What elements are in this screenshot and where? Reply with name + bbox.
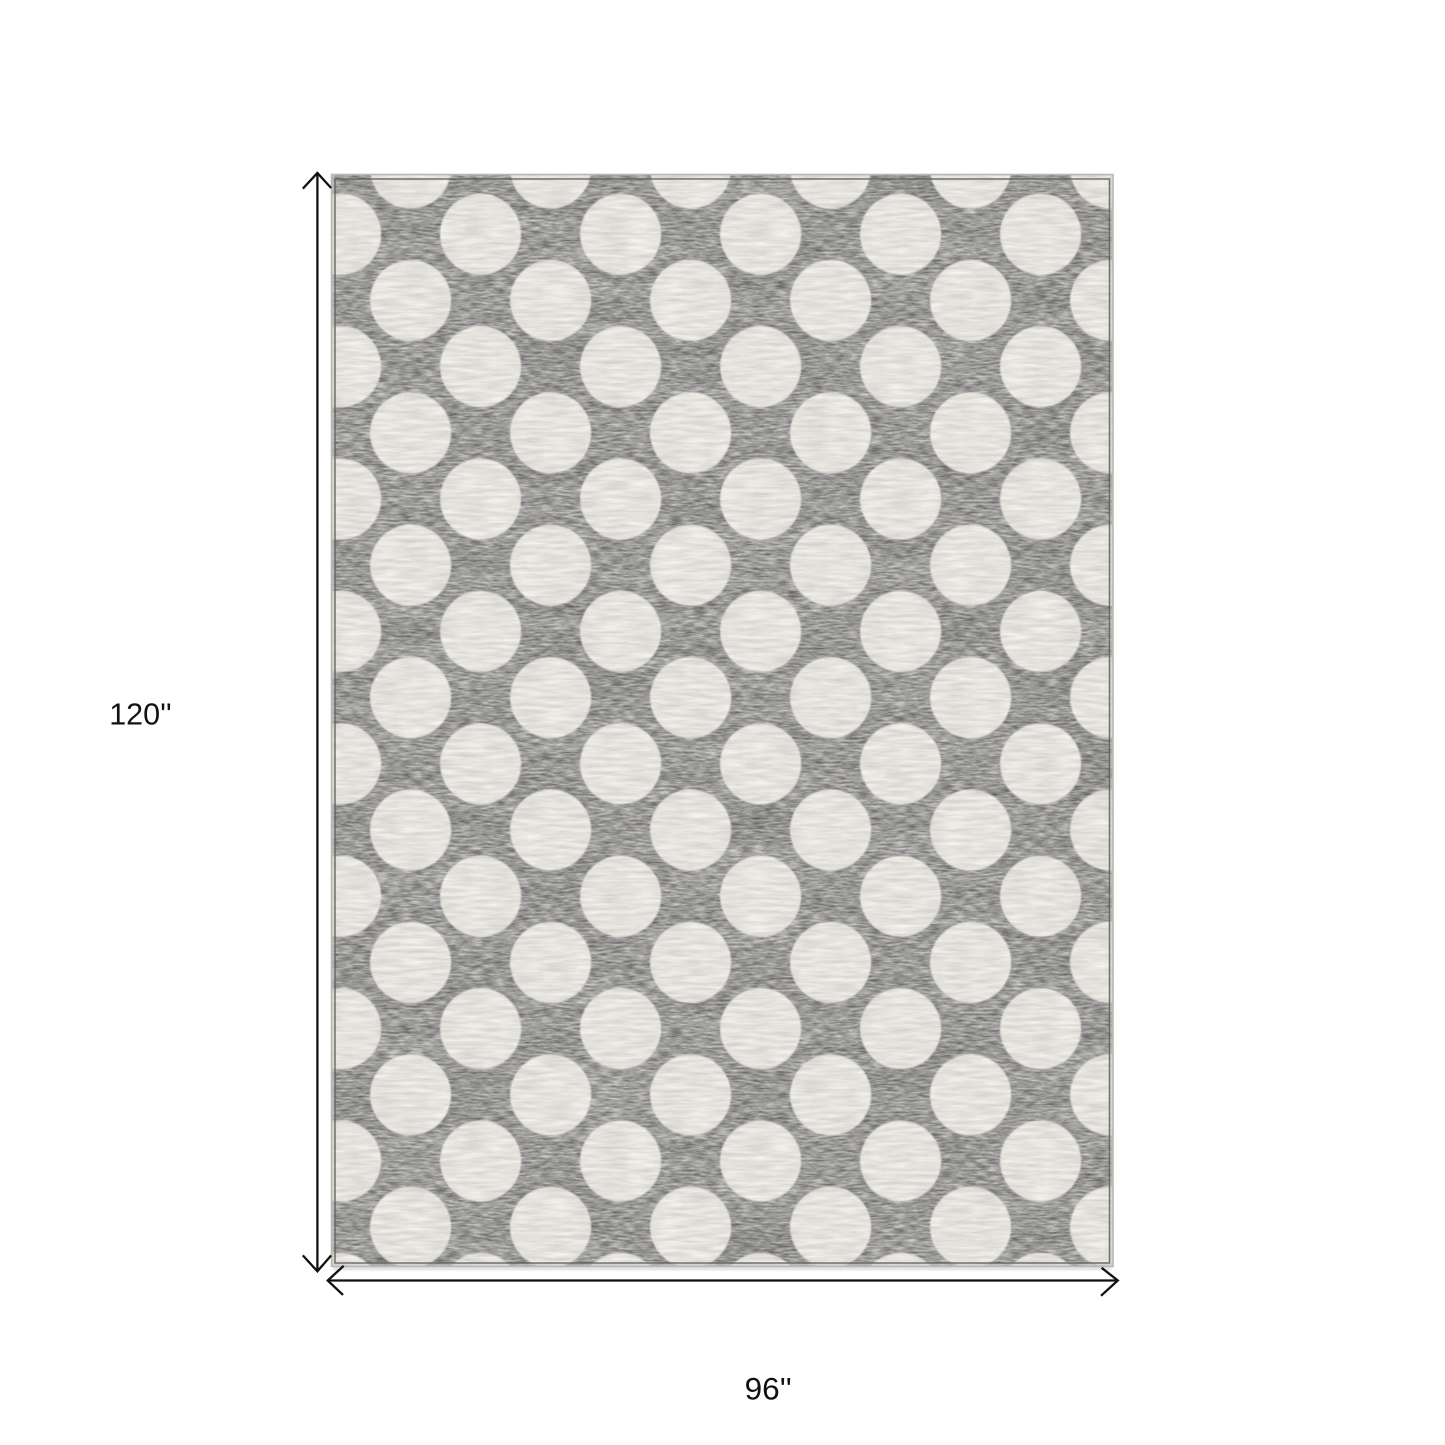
svg-text:120'': 120'': [109, 698, 172, 732]
svg-text:96'': 96'': [745, 1371, 792, 1407]
